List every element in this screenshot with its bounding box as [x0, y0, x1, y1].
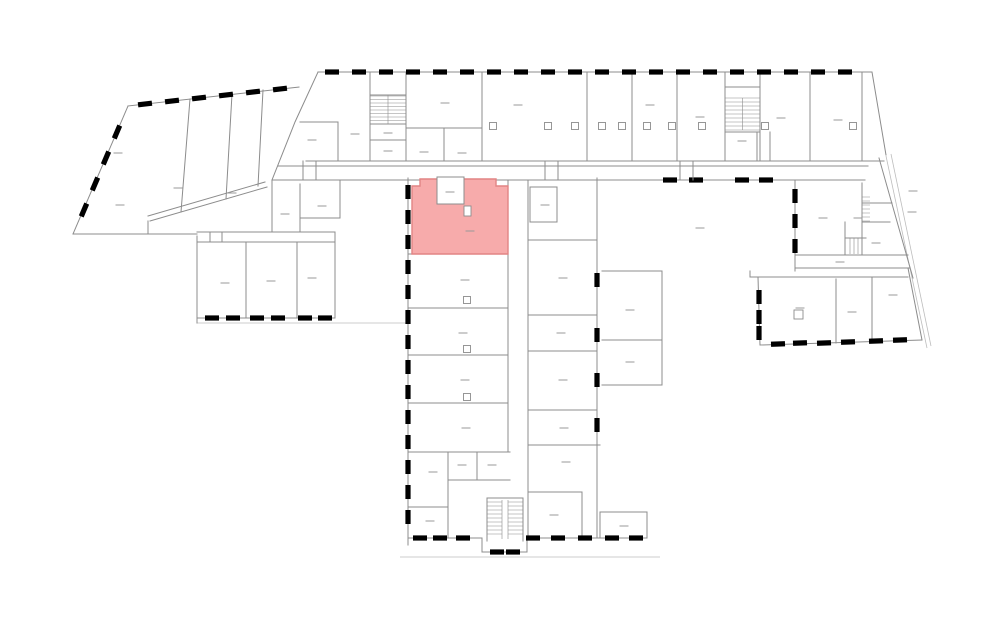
window-symbols — [79, 69, 907, 554]
staircase-bottom-icon — [487, 500, 523, 539]
column-symbols — [464, 123, 857, 401]
selected-room-shaft — [437, 177, 464, 204]
column-in-selected-room — [464, 206, 471, 216]
staircase-top-left-icon — [370, 95, 406, 124]
floor-plan-canvas — [0, 0, 1000, 623]
central-hall — [602, 271, 795, 277]
bottom-right-wing — [758, 268, 922, 345]
staircase-top-right-icon — [725, 98, 760, 130]
staircase-right-wing-icon — [850, 197, 870, 254]
top-strip-wing — [272, 72, 886, 180]
floor-plan — [0, 0, 1000, 623]
site-boundary-lines — [197, 154, 931, 557]
